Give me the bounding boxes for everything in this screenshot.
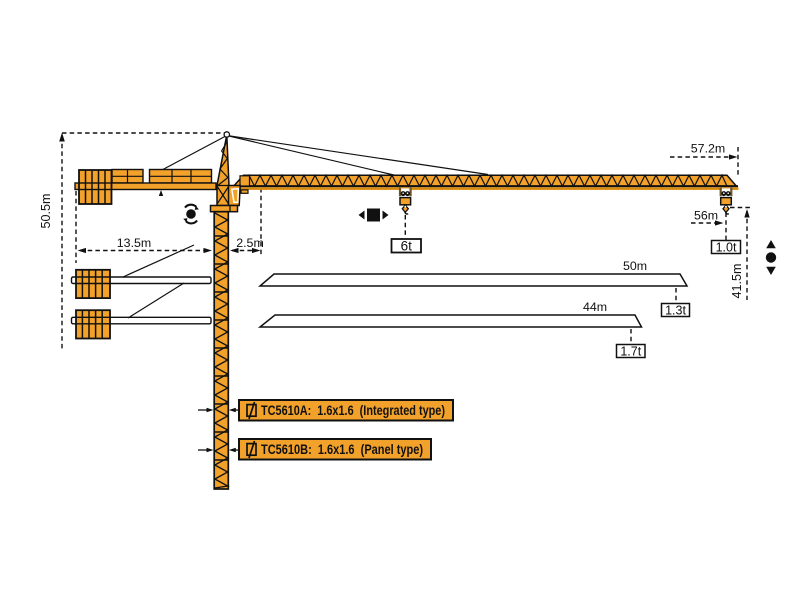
svg-text:1.3t: 1.3t — [665, 304, 686, 318]
svg-text:2.5m: 2.5m — [236, 236, 264, 250]
svg-text:TC5610B: 1.6x1.6 (Panel type: TC5610B: 1.6x1.6 (Panel type) — [261, 441, 423, 457]
svg-text:44m: 44m — [583, 300, 607, 314]
svg-text:57.2m: 57.2m — [691, 142, 725, 156]
svg-text:1.7t: 1.7t — [620, 345, 641, 359]
svg-text:TC5610A: 1.6x1.6 (Integrated: TC5610A: 1.6x1.6 (Integrated type) — [261, 402, 445, 418]
svg-text:50m: 50m — [623, 259, 647, 273]
svg-text:6t: 6t — [401, 238, 413, 253]
svg-text:1.0t: 1.0t — [716, 241, 737, 255]
svg-text:50.5m: 50.5m — [39, 193, 53, 228]
svg-text:56m: 56m — [694, 209, 718, 223]
svg-text:13.5m: 13.5m — [117, 236, 151, 250]
svg-text:41.5m: 41.5m — [730, 263, 744, 298]
